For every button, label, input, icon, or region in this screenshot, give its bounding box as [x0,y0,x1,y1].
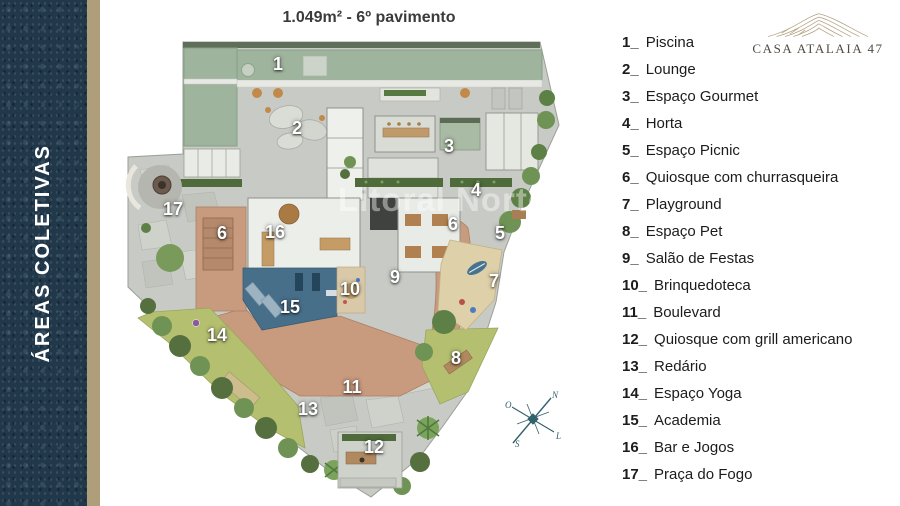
plan-marker-1: 1 [273,55,283,73]
legend-item-number: 1_ [622,34,639,51]
plan-marker-6: 6 [217,224,227,242]
legend-item-label: Espaço Pet [646,223,723,240]
plan-marker-11: 11 [342,378,361,396]
legend-item-label: Bar e Jogos [654,439,734,456]
legend-item-label: Espaço Picnic [646,142,740,159]
legend-item-5: 5_Espaço Picnic [622,137,852,164]
legend-item-number: 2_ [622,61,639,78]
legend-item-9: 9_Salão de Festas [622,245,852,272]
plan-marker-10: 10 [340,280,360,298]
legend-item-15: 15_Academia [622,407,852,434]
legend-item-label: Piscina [646,34,694,51]
plan-marker-15: 15 [280,298,300,316]
legend-item-2: 2_Lounge [622,56,852,83]
legend-item-label: Quiosque com grill americano [654,331,852,348]
plan-marker-17: 17 [163,200,183,218]
plan-marker-7: 7 [489,272,499,290]
legend-item-label: Academia [654,412,721,429]
plan-marker-5: 5 [495,224,505,242]
legend-item-label: Brinquedoteca [654,277,751,294]
legend-item-number: 7_ [622,196,639,213]
mountain-contours-icon [763,6,873,40]
legend-item-12: 12_Quiosque com grill americano [622,326,852,353]
legend-item-6: 6_Quiosque com churrasqueira [622,164,852,191]
plan-marker-9: 9 [390,268,400,286]
legend-item-number: 8_ [622,223,639,240]
svg-text:S: S [515,439,520,449]
plan-marker-4: 4 [471,181,481,199]
svg-text:N: N [551,390,559,400]
brand-logo: CASA ATALAIA 47 [747,6,889,57]
legend-item-14: 14_Espaço Yoga [622,380,852,407]
legend: 1_Piscina2_Lounge3_Espaço Gourmet4_Horta… [622,29,852,488]
legend-item-label: Espaço Yoga [654,385,742,402]
legend-item-label: Salão de Festas [646,250,754,267]
plan-marker-12: 12 [364,438,384,456]
legend-item-4: 4_Horta [622,110,852,137]
legend-item-number: 11_ [622,304,646,321]
watermark: Litoral Norte [338,181,547,219]
legend-item-number: 5_ [622,142,639,159]
legend-item-label: Boulevard [653,304,721,321]
svg-text:O: O [505,400,512,410]
legend-item-number: 14_ [622,385,647,402]
plan-marker-2: 2 [292,119,302,137]
compass-icon: N L S O [505,390,561,449]
legend-item-10: 10_Brinquedoteca [622,272,852,299]
umbrella-icon [460,88,470,98]
legend-item-number: 6_ [622,169,639,186]
legend-item-16: 16_Bar e Jogos [622,434,852,461]
spa-circle [242,64,255,77]
pool-back-wall [183,42,540,48]
legend-item-number: 13_ [622,358,647,375]
legend-item-7: 7_Playground [622,191,852,218]
legend-item-label: Quiosque com churrasqueira [646,169,839,186]
plan-marker-16: 16 [265,223,285,241]
legend-item-number: 16_ [622,439,647,456]
legend-item-number: 10_ [622,277,647,294]
legend-item-11: 11_Boulevard [622,299,852,326]
plan-marker-3: 3 [444,137,454,155]
legend-item-label: Espaço Gourmet [646,88,759,105]
legend-item-label: Playground [646,196,722,213]
legend-item-17: 17_Praça do Fogo [622,461,852,488]
legend-item-label: Horta [646,115,683,132]
legend-item-number: 4_ [622,115,639,132]
umbrella-icon [252,88,262,98]
plan-marker-14: 14 [207,326,227,344]
brand-name: CASA ATALAIA 47 [747,41,889,57]
legend-item-label: Lounge [646,61,696,78]
legend-item-number: 9_ [622,250,639,267]
legend-item-3: 3_Espaço Gourmet [622,83,852,110]
plan-marker-8: 8 [451,349,461,367]
plan-marker-13: 13 [298,400,318,418]
legend-item-number: 3_ [622,88,639,105]
legend-item-number: 15_ [622,412,647,429]
legend-item-label: Redário [654,358,707,375]
legend-item-13: 13_Redário [622,353,852,380]
svg-text:L: L [555,431,561,441]
legend-item-8: 8_Espaço Pet [622,218,852,245]
legend-item-label: Praça do Fogo [654,466,752,483]
legend-item-number: 12_ [622,331,647,348]
legend-item-number: 17_ [622,466,647,483]
plan-marker-6: 6 [448,215,458,233]
umbrella-icon [273,88,283,98]
